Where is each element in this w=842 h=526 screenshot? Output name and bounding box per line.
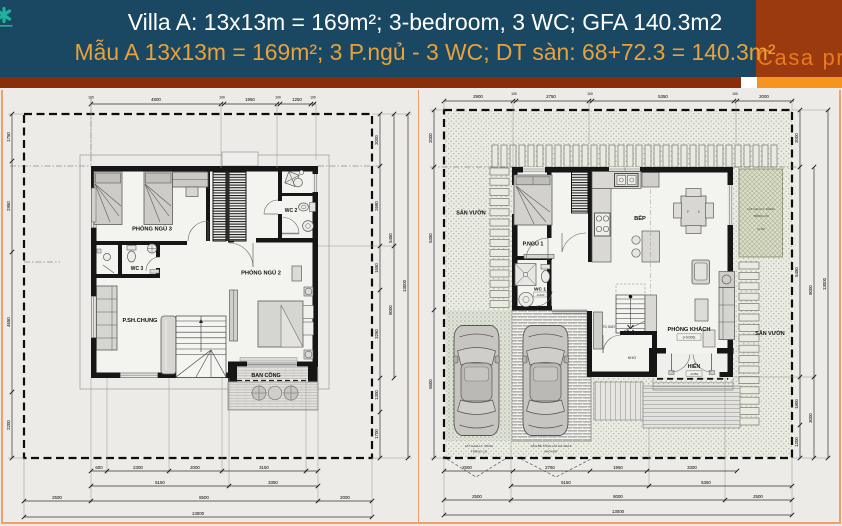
svg-text:2500: 2500 <box>462 465 472 470</box>
svg-text:1250: 1250 <box>292 97 302 102</box>
svg-text:2500: 2500 <box>753 494 763 499</box>
svg-text:SÂN VƯỜN: SÂN VƯỜN <box>755 329 785 337</box>
svg-text:2000: 2000 <box>428 133 433 143</box>
svg-text:5450: 5450 <box>794 267 799 277</box>
svg-text:PHÒNG KHÁCH: PHÒNG KHÁCH <box>668 325 711 333</box>
svg-text:2000: 2000 <box>794 133 799 143</box>
svg-text:13000: 13000 <box>402 279 407 292</box>
svg-text:100: 100 <box>310 95 316 99</box>
svg-text:3350: 3350 <box>268 480 278 485</box>
svg-text:3000: 3000 <box>808 413 813 423</box>
svg-text:5350: 5350 <box>428 233 433 243</box>
svg-text:13000: 13000 <box>612 509 625 514</box>
svg-text:2750: 2750 <box>546 94 556 99</box>
svg-text:2500: 2500 <box>472 494 482 499</box>
svg-text:8500: 8500 <box>199 495 209 500</box>
svg-text:2000: 2000 <box>340 495 350 500</box>
svg-text:8000: 8000 <box>613 494 623 499</box>
svg-text:1300: 1300 <box>374 390 379 400</box>
svg-text:5500: 5500 <box>428 379 433 389</box>
svg-text:2200: 2200 <box>6 420 11 430</box>
svg-text:100: 100 <box>511 92 517 96</box>
svg-text:5150: 5150 <box>561 480 571 485</box>
svg-text:2900: 2900 <box>473 94 483 99</box>
svg-text:4650: 4650 <box>6 317 11 327</box>
svg-text:2950: 2950 <box>6 201 11 211</box>
svg-text:4800: 4800 <box>151 97 161 102</box>
svg-text:-0.020: -0.020 <box>536 293 545 297</box>
svg-text:2750: 2750 <box>545 465 555 470</box>
svg-text:100: 100 <box>88 95 94 99</box>
svg-text:TRỒNG CỎ: TRỒNG CỎ <box>471 449 488 454</box>
svg-text:2680: 2680 <box>374 201 379 211</box>
svg-text:P.NGỦ 1: P.NGỦ 1 <box>523 241 544 248</box>
svg-text:5150: 5150 <box>155 480 165 485</box>
svg-text:1700: 1700 <box>374 429 379 439</box>
svg-text:100: 100 <box>275 95 281 99</box>
svg-text:5350: 5350 <box>701 480 711 485</box>
svg-text:5350: 5350 <box>658 94 668 99</box>
svg-text:KHO: KHO <box>628 356 636 360</box>
svg-text:1200: 1200 <box>794 437 799 447</box>
svg-text:8000: 8000 <box>388 305 393 315</box>
svg-text:1750: 1750 <box>6 132 11 142</box>
svg-text:600: 600 <box>95 465 103 470</box>
svg-text:3150: 3150 <box>259 465 269 470</box>
svg-text:13000: 13000 <box>822 277 827 290</box>
svg-text:2300: 2300 <box>133 465 143 470</box>
svg-text:WC 1: WC 1 <box>534 287 546 293</box>
svg-text:BAN CÔNG: BAN CÔNG <box>251 371 280 379</box>
svg-text:1950: 1950 <box>613 465 623 470</box>
svg-text:WC 3: WC 3 <box>131 266 144 272</box>
svg-text:13000: 13000 <box>192 511 205 516</box>
svg-text:PHÒNG NGỦ 2: PHÒNG NGỦ 2 <box>241 269 281 277</box>
svg-text:(0.19): (0.19) <box>757 227 765 231</box>
svg-text:1950: 1950 <box>245 97 255 102</box>
svg-text:KHÔ MẶT: KHÔ MẶT <box>544 449 558 454</box>
svg-text:LÁT GẠCH X. MĂNG: LÁT GẠCH X. MĂNG <box>465 444 494 448</box>
svg-text:HIÊN: HIÊN <box>688 362 701 370</box>
svg-text:5450: 5450 <box>388 233 393 243</box>
svg-text:1650: 1650 <box>374 263 379 273</box>
svg-text:SÂN BÊ TÔNG LÁT ĐÁ 30x15: SÂN BÊ TÔNG LÁT ĐÁ 30x15 <box>531 443 572 448</box>
svg-text:1800: 1800 <box>794 399 799 409</box>
svg-text:100: 100 <box>219 95 225 99</box>
svg-text:100: 100 <box>587 92 593 96</box>
svg-text:PHÒNG NGỦ 3: PHÒNG NGỦ 3 <box>132 225 172 233</box>
svg-text:2000: 2000 <box>374 135 379 145</box>
svg-text:(+0.000): (+0.000) <box>683 336 696 340</box>
svg-text:3300: 3300 <box>687 465 697 470</box>
svg-text:2500: 2500 <box>52 495 62 500</box>
svg-text:2000: 2000 <box>190 465 200 470</box>
svg-text:8000: 8000 <box>808 285 813 295</box>
svg-text:-0.050: -0.050 <box>690 372 699 376</box>
svg-text:WC 2: WC 2 <box>285 208 298 214</box>
svg-text:P.SH.CHUNG: P.SH.CHUNG <box>123 318 159 324</box>
svg-text:TRỒNG CỎ: TRỒNG CỎ <box>753 213 769 218</box>
svg-text:BẾP: BẾP <box>634 215 646 222</box>
svg-text:LÁT GẠCH X. MĂNG: LÁT GẠCH X. MĂNG <box>747 207 775 211</box>
svg-text:TỦ GIÀY: TỦ GIÀY <box>603 324 617 329</box>
svg-text:P: P <box>687 210 689 214</box>
svg-text:2000: 2000 <box>759 94 769 99</box>
svg-text:3250: 3250 <box>374 329 379 339</box>
svg-text:100: 100 <box>732 92 738 96</box>
svg-text:SÂN VƯỜN: SÂN VƯỜN <box>456 209 486 217</box>
